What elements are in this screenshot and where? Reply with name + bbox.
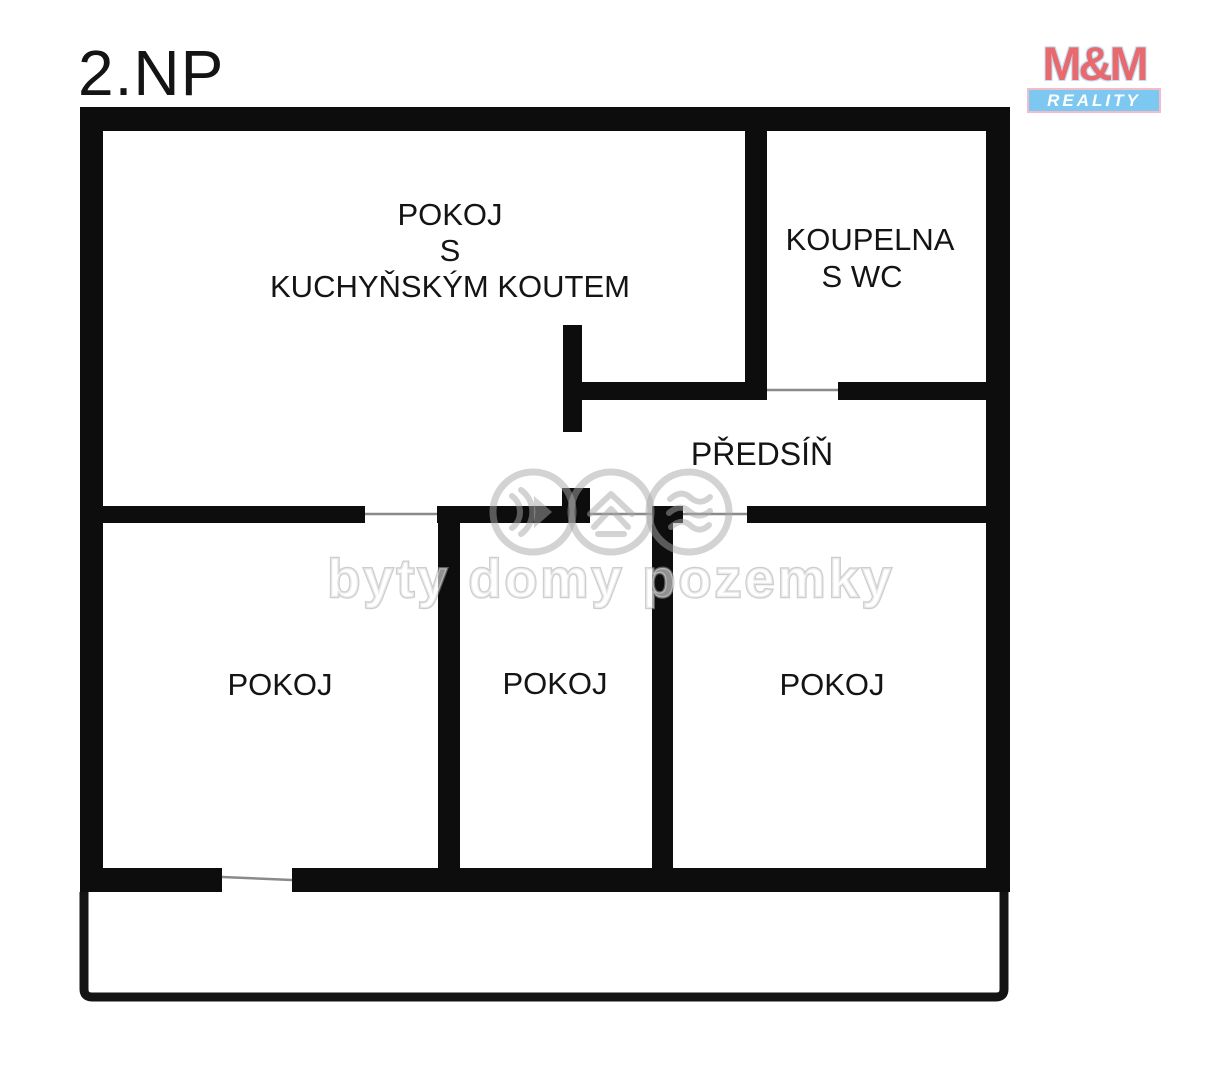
label-hallway: PŘEDSÍŇ bbox=[691, 436, 833, 472]
wall-hall-north-east bbox=[838, 382, 986, 400]
balcony-outline bbox=[84, 892, 1004, 997]
label-living-line3: KUCHYŇSKÝM KOUTEM bbox=[270, 269, 630, 304]
wall-hall-north-west bbox=[582, 382, 767, 400]
label-living-line1: POKOJ bbox=[397, 197, 502, 232]
wall-mid-d bbox=[747, 506, 986, 523]
watermark: byty domy pozemky bbox=[327, 472, 894, 609]
wall-bottom-east bbox=[292, 868, 1010, 892]
door-line-balcony bbox=[222, 877, 292, 880]
label-bathroom-line1: KOUPELNA bbox=[786, 222, 955, 257]
wall-top bbox=[80, 107, 1010, 131]
room-labels: POKOJ S KUCHYŇSKÝM KOUTEM KOUPELNA S WC … bbox=[227, 197, 954, 702]
floorplan: byty domy pozemky POKOJ S KUCHYŇSKÝM KOU… bbox=[0, 0, 1229, 1080]
wall-bottom-west bbox=[80, 868, 222, 892]
label-bedroom-right: POKOJ bbox=[779, 667, 884, 702]
watermark-text: byty domy pozemky bbox=[327, 549, 894, 609]
wall-bathroom-west bbox=[745, 131, 767, 400]
wall-right bbox=[986, 131, 1010, 892]
label-bedroom-middle: POKOJ bbox=[502, 666, 607, 701]
label-bathroom-line2: S WC bbox=[822, 259, 903, 294]
wall-mid-a bbox=[103, 506, 365, 523]
wall-kitchen-stub bbox=[563, 325, 582, 432]
sound-waves-icon bbox=[512, 490, 552, 534]
wall-left bbox=[80, 131, 103, 892]
terrain-layers-icon bbox=[669, 494, 710, 530]
label-bedroom-left: POKOJ bbox=[227, 667, 332, 702]
label-living-line2: S bbox=[440, 233, 461, 268]
